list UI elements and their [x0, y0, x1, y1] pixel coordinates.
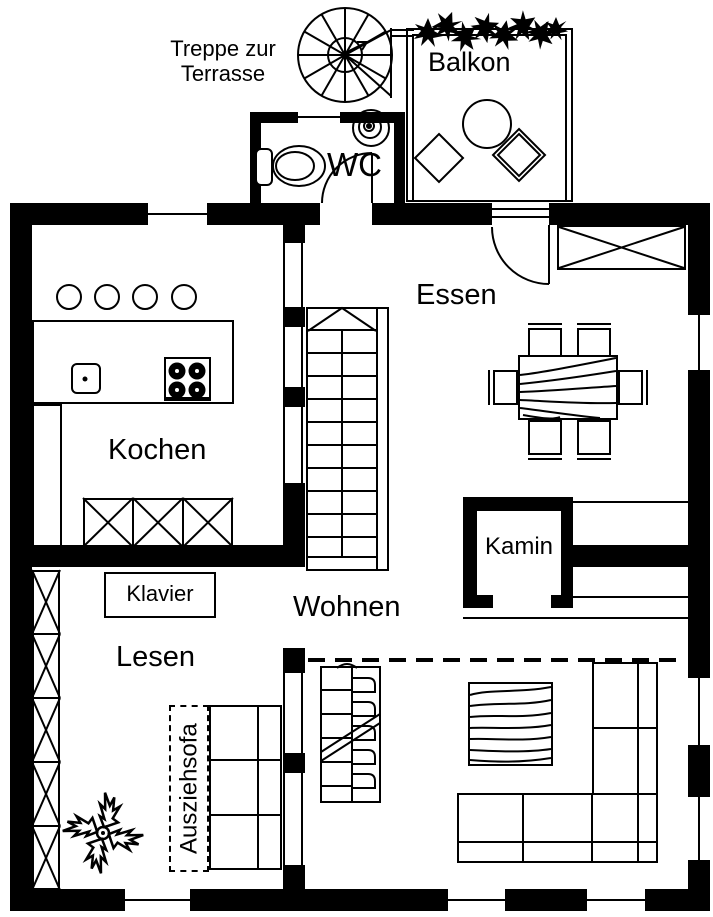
- room-label-wohnen: Wohnen: [293, 592, 401, 622]
- window-essen: [688, 315, 710, 370]
- wall-kitchen-lesen: [10, 545, 305, 567]
- wall-hall-segment: [283, 225, 305, 243]
- kitchen-tall-cabinet: [32, 404, 62, 547]
- plant-icon: [62, 792, 144, 874]
- stair-note-line2: Terrasse: [158, 61, 288, 86]
- floor-plan: Treppe zur Terrasse Balkon WC Essen Koch…: [0, 0, 713, 917]
- window-wc: [298, 112, 340, 123]
- wall-wohnen-segment: [283, 648, 305, 673]
- wall-essen-wohnen: [573, 545, 688, 567]
- spiral-staircase-icon: [298, 8, 414, 102]
- main-staircase: [306, 307, 389, 571]
- bar-stool: [171, 284, 197, 310]
- basement-stairs: [320, 666, 381, 803]
- window-wohnen-bottom-1: [448, 889, 505, 911]
- dining-chair: [493, 370, 518, 405]
- door-opening-wc: [320, 203, 372, 225]
- stair-direction-arrow: [347, 42, 367, 52]
- dining-chair: [577, 420, 611, 455]
- window-wohnen-right-1: [688, 678, 710, 745]
- wall-wohnen-segment: [283, 865, 305, 892]
- bar-stool: [56, 284, 82, 310]
- stair-note: Treppe zur Terrasse: [158, 36, 288, 86]
- pullout-sofa-label: Ausziehsofa: [176, 704, 201, 874]
- wall-hall-segment: [283, 307, 305, 327]
- dining-table: [518, 355, 618, 420]
- corner-sofa-horizontal: [457, 793, 658, 863]
- room-label-wc: WC: [327, 148, 382, 183]
- bookshelf: [32, 570, 60, 890]
- fireplace-label: Kamin: [477, 534, 561, 559]
- room-label-lesen: Lesen: [116, 642, 195, 672]
- window-kitchen: [148, 203, 207, 225]
- sofa-lesen: [209, 705, 282, 870]
- wall-wohnen-segment: [283, 753, 305, 773]
- wall-hall-segment: [283, 387, 305, 407]
- bar-stool: [132, 284, 158, 310]
- kitchen-cabinet-row: [83, 498, 233, 547]
- door-threshold-balkon: [492, 203, 549, 225]
- balcony-door: [492, 225, 549, 284]
- room-label-balkon: Balkon: [428, 48, 511, 76]
- stair-note-line1: Treppe zur: [158, 36, 288, 61]
- window-wohnen-bottom-2: [587, 889, 645, 911]
- stove: [164, 357, 211, 401]
- fireplace-hearth: [493, 593, 551, 610]
- balcony-table: [462, 99, 512, 149]
- piano-label: Klavier: [104, 582, 216, 605]
- window-wohnen-right-2: [688, 797, 710, 860]
- room-label-essen: Essen: [416, 280, 497, 310]
- kitchen-sink: [71, 363, 101, 394]
- coffee-table: [468, 682, 553, 766]
- bar-stool: [94, 284, 120, 310]
- room-label-kochen: Kochen: [108, 435, 206, 465]
- dining-chair: [528, 420, 562, 455]
- sideboard: [557, 225, 686, 270]
- dining-chair: [618, 370, 643, 405]
- window-lesen-bottom: [125, 889, 190, 911]
